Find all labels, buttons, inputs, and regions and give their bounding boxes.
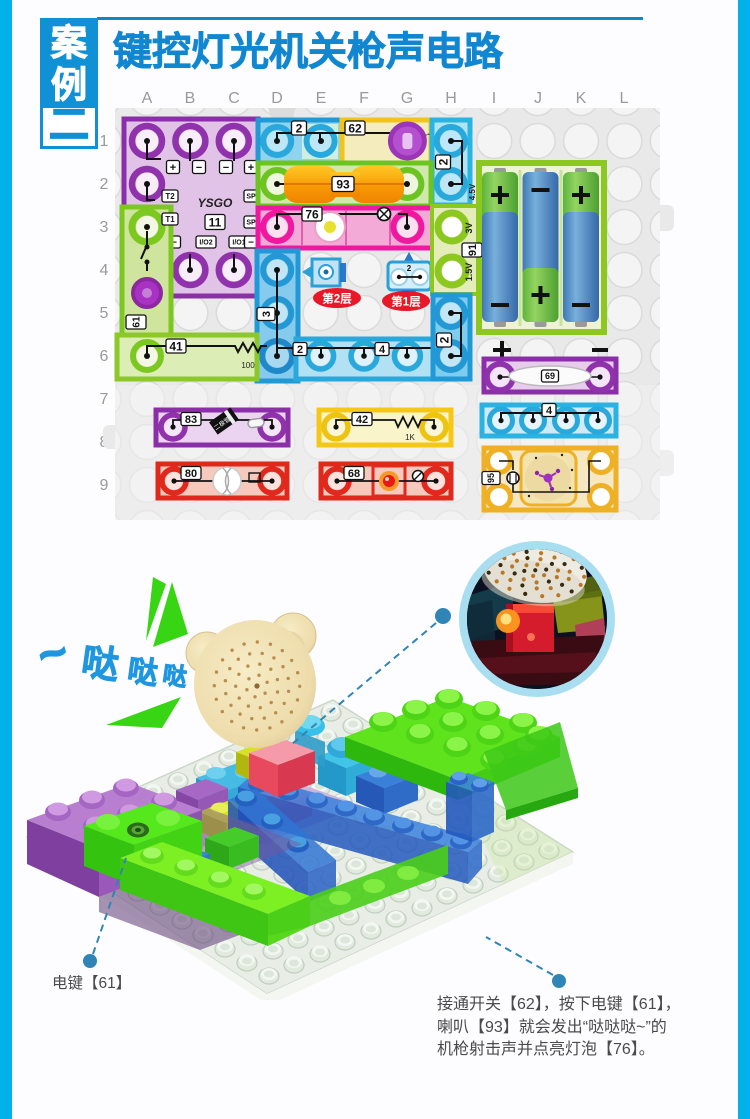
svg-text:42: 42 bbox=[356, 414, 368, 426]
svg-text:1: 1 bbox=[100, 133, 109, 150]
svg-text:83: 83 bbox=[185, 414, 197, 426]
svg-text:2: 2 bbox=[436, 158, 450, 165]
svg-text:G: G bbox=[401, 90, 413, 107]
svg-text:J: J bbox=[534, 90, 542, 107]
svg-text:+: + bbox=[248, 162, 254, 174]
svg-text:H: H bbox=[445, 90, 457, 107]
svg-text:41: 41 bbox=[169, 339, 183, 353]
svg-text:T2: T2 bbox=[165, 192, 175, 201]
svg-text:62: 62 bbox=[348, 121, 362, 135]
svg-text:D: D bbox=[271, 90, 283, 107]
svg-text:−: − bbox=[248, 238, 254, 249]
svg-text:2: 2 bbox=[297, 344, 303, 356]
svg-text:哒: 哒 bbox=[161, 662, 189, 692]
svg-text:95: 95 bbox=[486, 473, 496, 483]
svg-text:~: ~ bbox=[31, 622, 75, 684]
svg-text:A: A bbox=[142, 90, 153, 107]
svg-text:E: E bbox=[316, 90, 327, 107]
svg-text:−: − bbox=[223, 162, 229, 174]
svg-text:I/O2: I/O2 bbox=[199, 240, 212, 247]
svg-text:7: 7 bbox=[100, 391, 109, 408]
svg-text:哒: 哒 bbox=[125, 654, 159, 691]
svg-text:L: L bbox=[620, 90, 629, 107]
svg-text:第2层: 第2层 bbox=[322, 292, 352, 306]
svg-text:76: 76 bbox=[305, 207, 319, 221]
svg-text:61: 61 bbox=[132, 316, 143, 328]
svg-text:第1层: 第1层 bbox=[391, 295, 421, 309]
svg-text:F: F bbox=[359, 90, 369, 107]
svg-text:11: 11 bbox=[209, 215, 222, 229]
svg-text:9: 9 bbox=[100, 477, 109, 494]
svg-text:2: 2 bbox=[296, 121, 303, 135]
svg-text:−: − bbox=[196, 162, 202, 174]
svg-text:2: 2 bbox=[437, 336, 451, 343]
svg-text:YSGO: YSGO bbox=[198, 196, 233, 210]
svg-text:3: 3 bbox=[261, 311, 273, 317]
svg-text:哒: 哒 bbox=[79, 641, 121, 687]
svg-text:68: 68 bbox=[348, 468, 360, 480]
svg-text:I: I bbox=[492, 90, 496, 107]
svg-text:C: C bbox=[228, 90, 240, 107]
svg-text:1K: 1K bbox=[405, 433, 415, 442]
svg-text:5: 5 bbox=[100, 305, 109, 322]
svg-text:91: 91 bbox=[467, 244, 479, 256]
svg-text:+: + bbox=[170, 162, 176, 174]
svg-text:4: 4 bbox=[379, 344, 386, 356]
svg-text:4.5V: 4.5V bbox=[468, 183, 477, 200]
svg-text:100: 100 bbox=[241, 361, 255, 370]
svg-text:B: B bbox=[185, 90, 196, 107]
svg-text:2: 2 bbox=[407, 264, 412, 273]
svg-text:T1: T1 bbox=[165, 215, 175, 224]
svg-text:80: 80 bbox=[185, 468, 197, 480]
svg-text:69: 69 bbox=[545, 371, 555, 381]
svg-text:6: 6 bbox=[100, 348, 109, 365]
svg-text:3: 3 bbox=[100, 219, 109, 236]
svg-text:K: K bbox=[576, 90, 587, 107]
svg-text:1.5V: 1.5V bbox=[464, 263, 474, 282]
svg-text:4: 4 bbox=[100, 262, 109, 279]
svg-text:I/O1: I/O1 bbox=[232, 240, 245, 247]
svg-text:3V: 3V bbox=[464, 222, 474, 233]
svg-text:4: 4 bbox=[546, 405, 553, 417]
svg-text:2: 2 bbox=[100, 176, 109, 193]
svg-text:93: 93 bbox=[336, 177, 350, 191]
